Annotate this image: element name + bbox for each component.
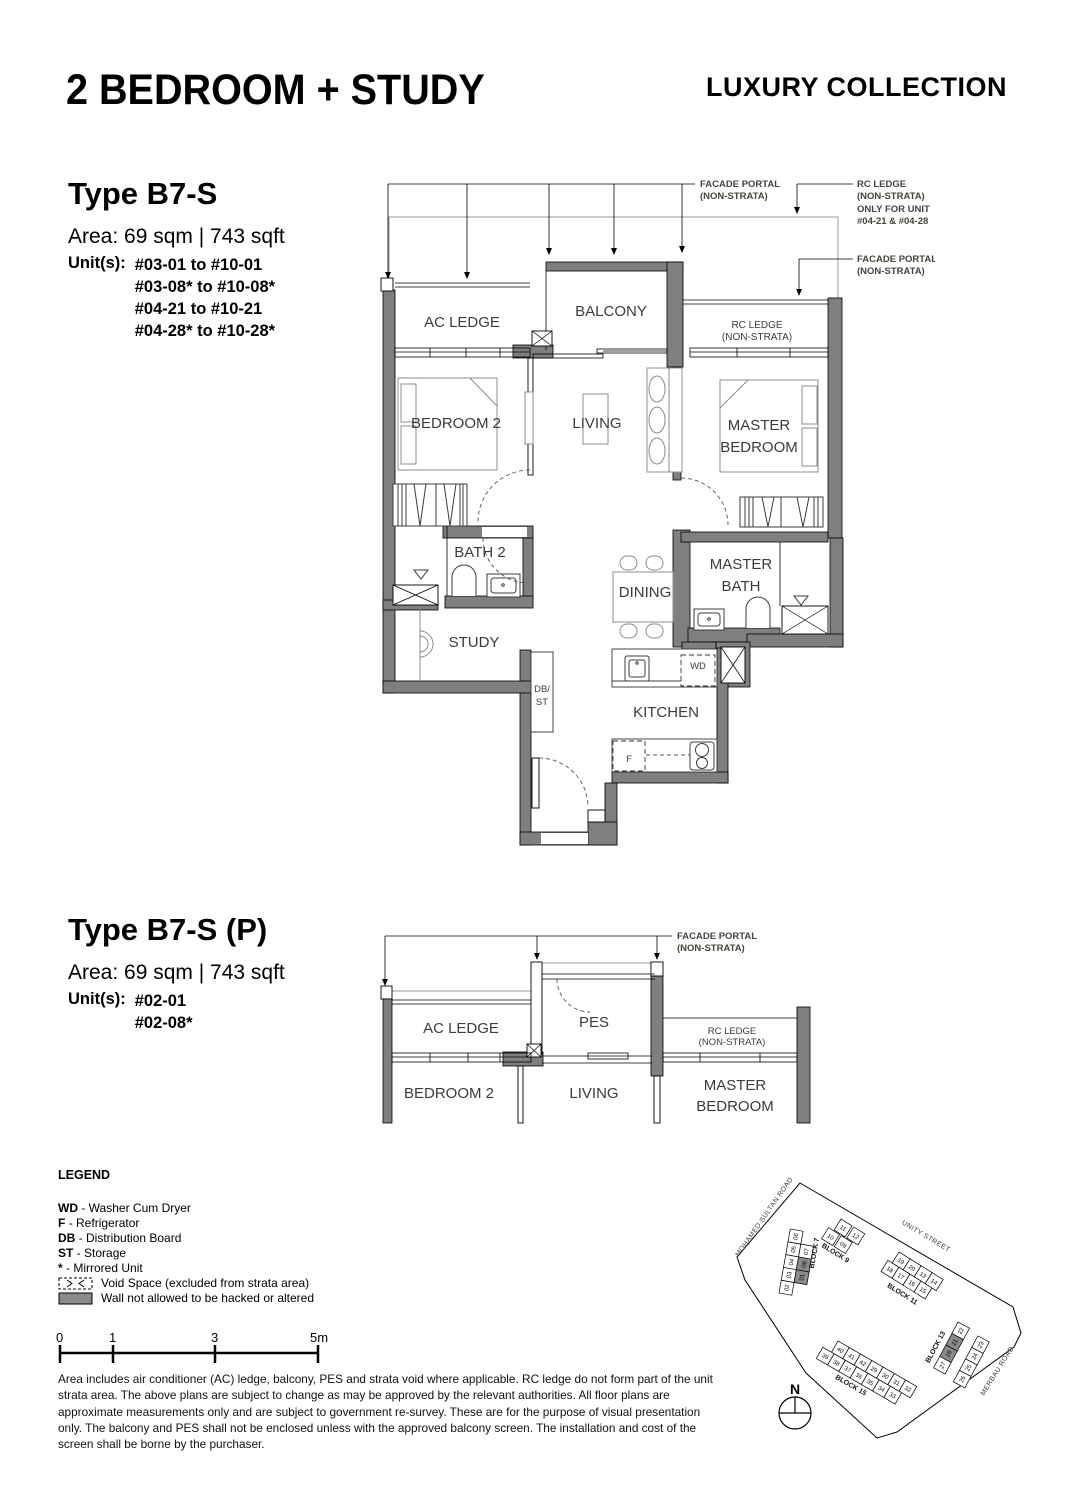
scale-tick-label: 3 xyxy=(211,1330,218,1345)
page-title: 2 BEDROOM + STUDY xyxy=(66,66,485,115)
legend-item: DB - Distribution Board xyxy=(58,1231,388,1246)
room-label-master-bedroom: MASTER xyxy=(728,417,791,434)
road-label: MERBAU ROAD xyxy=(980,1345,1016,1397)
map-block: 11121009BLOCK 9 xyxy=(817,1216,866,1265)
room-label-ac-ledge: AC LEDGE xyxy=(424,314,500,331)
legend: LEGEND WD - Washer Cum Dryer F - Refrige… xyxy=(58,1168,388,1306)
legend-item: ST - Storage xyxy=(58,1246,388,1261)
room-label-st: ST xyxy=(536,697,548,708)
map-block: 0203040506010807BLOCK 7 xyxy=(779,1229,822,1299)
callout-rc-ledge: #04-21 & #04-28 xyxy=(857,216,928,227)
legend-void-row: Void Space (excluded from strata area) xyxy=(58,1276,388,1291)
callout-facade-portal: (NON-STRATA) xyxy=(677,943,745,954)
disclaimer-text: Area includes air conditioner (AC) ledge… xyxy=(58,1371,714,1452)
room-label-rc-ledge: RC LEDGE xyxy=(731,320,782,331)
north-label: N xyxy=(790,1381,800,1397)
floor-plan-2-svg: AC LEDGE PES RC LEDGE (NON-STRATA) BEDRO… xyxy=(375,920,935,1130)
scale-tick-label: 1 xyxy=(109,1330,116,1345)
room-label-fridge: F xyxy=(626,754,632,765)
toilet-icon xyxy=(746,597,770,628)
callout-facade-portal: (NON-STRATA) xyxy=(857,266,925,277)
legend-item: WD - Washer Cum Dryer xyxy=(58,1201,388,1216)
legend-item: * - Mirrored Unit xyxy=(58,1261,388,1276)
site-boundary xyxy=(737,1183,1021,1438)
collection-label: LUXURY COLLECTION xyxy=(706,72,1007,103)
north-indicator: N xyxy=(779,1381,811,1429)
toilet-icon xyxy=(452,565,476,596)
callout-rc-ledge: RC LEDGE xyxy=(857,179,906,190)
plan1-info: Type B7-S Area: 69 sqm | 743 sqft Unit(s… xyxy=(68,176,398,342)
room-label-rc-ledge: (NON-STRATA) xyxy=(722,332,792,343)
room-label-ac-ledge: AC LEDGE xyxy=(423,1020,499,1037)
room-label-dining: DINING xyxy=(619,584,672,601)
room-label-master-bedroom: BEDROOM xyxy=(696,1098,774,1115)
road-label: UNITY STREET xyxy=(900,1219,951,1254)
plan2-info: Type B7-S (P) Area: 69 sqm | 743 sqft Un… xyxy=(68,912,398,1034)
legend-heading: LEGEND xyxy=(58,1168,388,1182)
room-label-db: DB/ xyxy=(534,684,550,695)
floor-trap-icon xyxy=(414,570,428,579)
room-label-master-bath: MASTER xyxy=(710,556,773,573)
plan1-units-label: Unit(s): xyxy=(68,254,126,342)
map-block-label: BLOCK 7 xyxy=(809,1237,821,1269)
room-label-master-bedroom: MASTER xyxy=(704,1077,767,1094)
room-label-living: LIVING xyxy=(572,415,621,432)
plan1-area: Area: 69 sqm | 743 sqft xyxy=(68,225,398,249)
map-block: 2221282723242526BLOCK 13 xyxy=(922,1317,990,1388)
callout-facade-portal: FACADE PORTAL xyxy=(700,179,780,190)
room-label-living: LIVING xyxy=(569,1085,618,1102)
map-block: 4041422930313239383736353433BLOCK 15 xyxy=(811,1336,916,1418)
floor-trap-icon xyxy=(794,596,808,605)
plan2-units: Unit(s): #02-01 #02-08* xyxy=(68,990,398,1034)
callout-lines xyxy=(382,936,672,986)
callout-facade-portal: FACADE PORTAL xyxy=(677,931,757,942)
scale-tick-label: 5m xyxy=(310,1330,328,1345)
road-label: MOHAMED SULTAN ROAD xyxy=(735,1176,795,1258)
room-label-wd: WD xyxy=(690,661,706,672)
plan2-units-label: Unit(s): xyxy=(68,990,126,1034)
plan1-unit-line: #04-28* to #10-28* xyxy=(135,320,275,342)
plan2-unit-line: #02-08* xyxy=(135,1012,193,1034)
legend-item: F - Refrigerator xyxy=(58,1216,388,1231)
plan1-unit-line: #03-01 to #10-01 xyxy=(135,254,275,276)
room-label-master-bath: BATH xyxy=(722,578,761,595)
callout-facade-portal: (NON-STRATA) xyxy=(700,191,768,202)
plan1-unit-line: #03-08* to #10-08* xyxy=(135,276,275,298)
room-label-pes: PES xyxy=(579,1014,609,1031)
plan2-area: Area: 69 sqm | 743 sqft xyxy=(68,961,398,985)
room-label-kitchen: KITCHEN xyxy=(633,704,699,721)
void-space-icon xyxy=(58,1277,94,1290)
callout-facade-portal: FACADE PORTAL xyxy=(857,254,935,265)
legend-wall-row: Wall not allowed to be hacked or altered xyxy=(58,1291,388,1306)
room-label-bedroom2: BEDROOM 2 xyxy=(404,1085,494,1102)
door-leaf xyxy=(532,758,539,808)
floor-plan-1-svg: AC LEDGE BALCONY RC LEDGE (NON-STRATA) B… xyxy=(375,168,935,868)
callout-lines xyxy=(385,184,853,296)
plan1-units: Unit(s): #03-01 to #10-01 #03-08* to #10… xyxy=(68,254,398,342)
plan1-type-name: Type B7-S xyxy=(68,176,398,212)
site-map-svg: MOHAMED SULTAN ROAD UNITY STREET MERBAU … xyxy=(725,1145,1073,1460)
wall-icon xyxy=(58,1292,94,1305)
plan2-unit-line: #02-01 xyxy=(135,990,193,1012)
plan2-type-name: Type B7-S (P) xyxy=(68,912,398,948)
room-label-study: STUDY xyxy=(449,634,500,651)
room-label-master-bedroom: BEDROOM xyxy=(720,439,798,456)
room-label-bedroom2: BEDROOM 2 xyxy=(411,415,501,432)
scale-tick-label: 0 xyxy=(56,1330,63,1345)
room-label-bath2: BATH 2 xyxy=(454,544,505,561)
map-block: 1920131418171615BLOCK 11 xyxy=(875,1249,943,1311)
room-label-rc-ledge: RC LEDGE xyxy=(708,1026,757,1037)
scale-bar: 0 1 3 5m xyxy=(50,1328,350,1373)
room-label-rc-ledge: (NON-STRATA) xyxy=(699,1037,766,1048)
room-label-balcony: BALCONY xyxy=(575,303,647,320)
wardrobe-icon xyxy=(393,484,823,527)
callout-rc-ledge: ONLY FOR UNIT xyxy=(857,204,930,215)
callout-rc-ledge: (NON-STRATA) xyxy=(857,191,925,202)
plan1-unit-line: #04-21 to #10-21 xyxy=(135,298,275,320)
facade-portal-outline xyxy=(389,217,838,298)
